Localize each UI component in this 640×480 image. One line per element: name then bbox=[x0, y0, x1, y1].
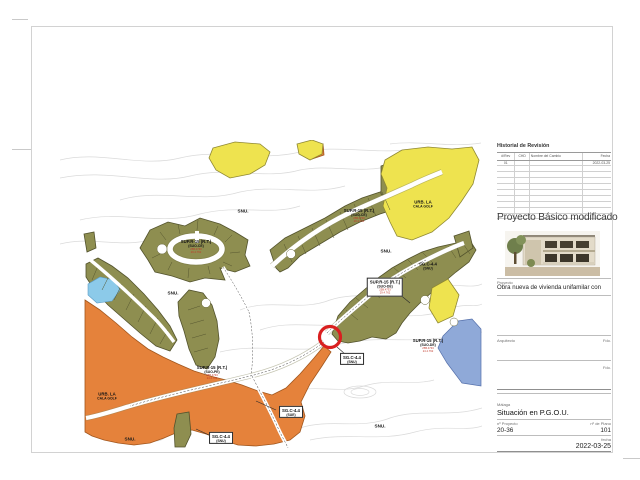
revision-cell bbox=[583, 190, 611, 195]
revision-cell bbox=[583, 202, 611, 207]
revision-cell bbox=[530, 202, 583, 207]
fold-mark bbox=[12, 19, 28, 20]
project-type-title: Proyecto Básico modificado bbox=[497, 212, 618, 223]
revision-cell bbox=[530, 161, 583, 166]
revision-cell bbox=[583, 196, 611, 201]
revision-cell bbox=[515, 161, 529, 166]
revision-cell: CHD bbox=[515, 153, 529, 160]
revision-cell bbox=[515, 190, 529, 195]
map-graphics bbox=[60, 140, 482, 448]
title-block: Historial de Revisión #/RevCHDNombre del… bbox=[497, 143, 611, 451]
revision-cell bbox=[497, 202, 515, 207]
revision-cell bbox=[530, 172, 583, 177]
date-value: 2022-03-25 bbox=[576, 443, 611, 450]
project-no-value: 20-36 bbox=[497, 427, 513, 434]
revision-cell bbox=[497, 190, 515, 195]
revision-table: #/RevCHDNombre del CambioFecha012022-03-… bbox=[497, 152, 611, 219]
revision-history-title: Historial de Revisión bbox=[497, 143, 549, 149]
revision-cell bbox=[530, 166, 583, 171]
revision-cell bbox=[497, 184, 515, 189]
revision-cell: 2022-03-25 bbox=[583, 161, 611, 166]
revision-cell bbox=[515, 184, 529, 189]
revision-cell bbox=[530, 184, 583, 189]
revision-cell: Fecha bbox=[583, 153, 611, 160]
sheet-title: Situación en P.G.O.U. bbox=[497, 408, 569, 417]
fold-mark bbox=[12, 149, 31, 150]
architect-label: Arquitecto bbox=[497, 338, 515, 343]
municipality-label: Málaga bbox=[497, 402, 510, 407]
revision-cell: Nombre del Cambio bbox=[530, 153, 583, 160]
revision-cell bbox=[583, 172, 611, 177]
revision-cell bbox=[515, 196, 529, 201]
revision-table-header: #/RevCHDNombre del CambioFecha bbox=[497, 153, 611, 161]
revision-cell bbox=[515, 178, 529, 183]
revision-cell bbox=[583, 184, 611, 189]
zone-yellow-urbanized bbox=[209, 140, 479, 323]
revision-cell: #/Rev bbox=[497, 153, 515, 160]
revision-cell bbox=[497, 178, 515, 183]
fold-mark bbox=[623, 458, 640, 459]
revision-cell bbox=[530, 190, 583, 195]
revision-cell: 01 bbox=[497, 161, 515, 166]
signed-label: Fdo. bbox=[603, 338, 611, 343]
project-no-label: nº Proyecto bbox=[497, 421, 518, 426]
date-label: fecha bbox=[601, 437, 611, 442]
revision-cell bbox=[497, 172, 515, 177]
revision-cell bbox=[583, 178, 611, 183]
revision-cell bbox=[515, 172, 529, 177]
revision-cell bbox=[530, 178, 583, 183]
revision-cell bbox=[497, 196, 515, 201]
project-description: Obra nueva de vivienda unifamilar con bbox=[497, 284, 601, 291]
plan-no-value: 101 bbox=[600, 427, 611, 434]
signed-label-2: Fdo. bbox=[603, 365, 611, 370]
revision-cell bbox=[515, 166, 529, 171]
sheet-page: SUP.R-15 (R.T.)(SUO-CE)25B.473029.4.762S… bbox=[0, 0, 640, 480]
plan-no-label: nº de Plano bbox=[590, 421, 611, 426]
revision-cell bbox=[583, 166, 611, 171]
revision-cell bbox=[530, 196, 583, 201]
situation-map: SUP.R-15 (R.T.)(SUO-CE)25B.473029.4.762S… bbox=[60, 140, 482, 448]
revision-cell bbox=[497, 166, 515, 171]
elevation-photo bbox=[505, 231, 600, 276]
revision-cell bbox=[515, 202, 529, 207]
